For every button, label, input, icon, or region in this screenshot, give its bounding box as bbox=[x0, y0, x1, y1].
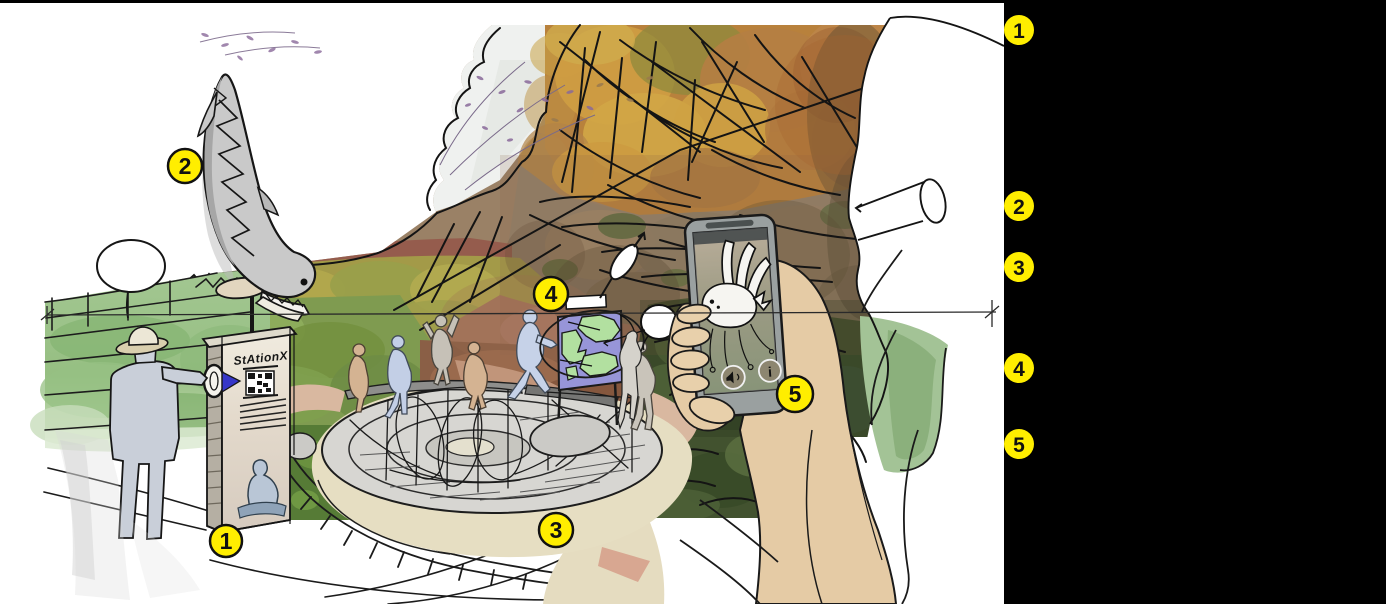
svg-text:3: 3 bbox=[550, 517, 563, 543]
svg-text:2: 2 bbox=[1013, 196, 1025, 219]
svg-text:5: 5 bbox=[789, 381, 802, 407]
svg-text:1: 1 bbox=[220, 528, 233, 554]
svg-text:4: 4 bbox=[1013, 358, 1025, 381]
svg-text:3: 3 bbox=[1013, 257, 1025, 280]
svg-text:4: 4 bbox=[545, 281, 558, 307]
svg-text:1: 1 bbox=[1013, 20, 1025, 43]
svg-text:5: 5 bbox=[1013, 434, 1025, 457]
svg-text:2: 2 bbox=[179, 153, 192, 179]
